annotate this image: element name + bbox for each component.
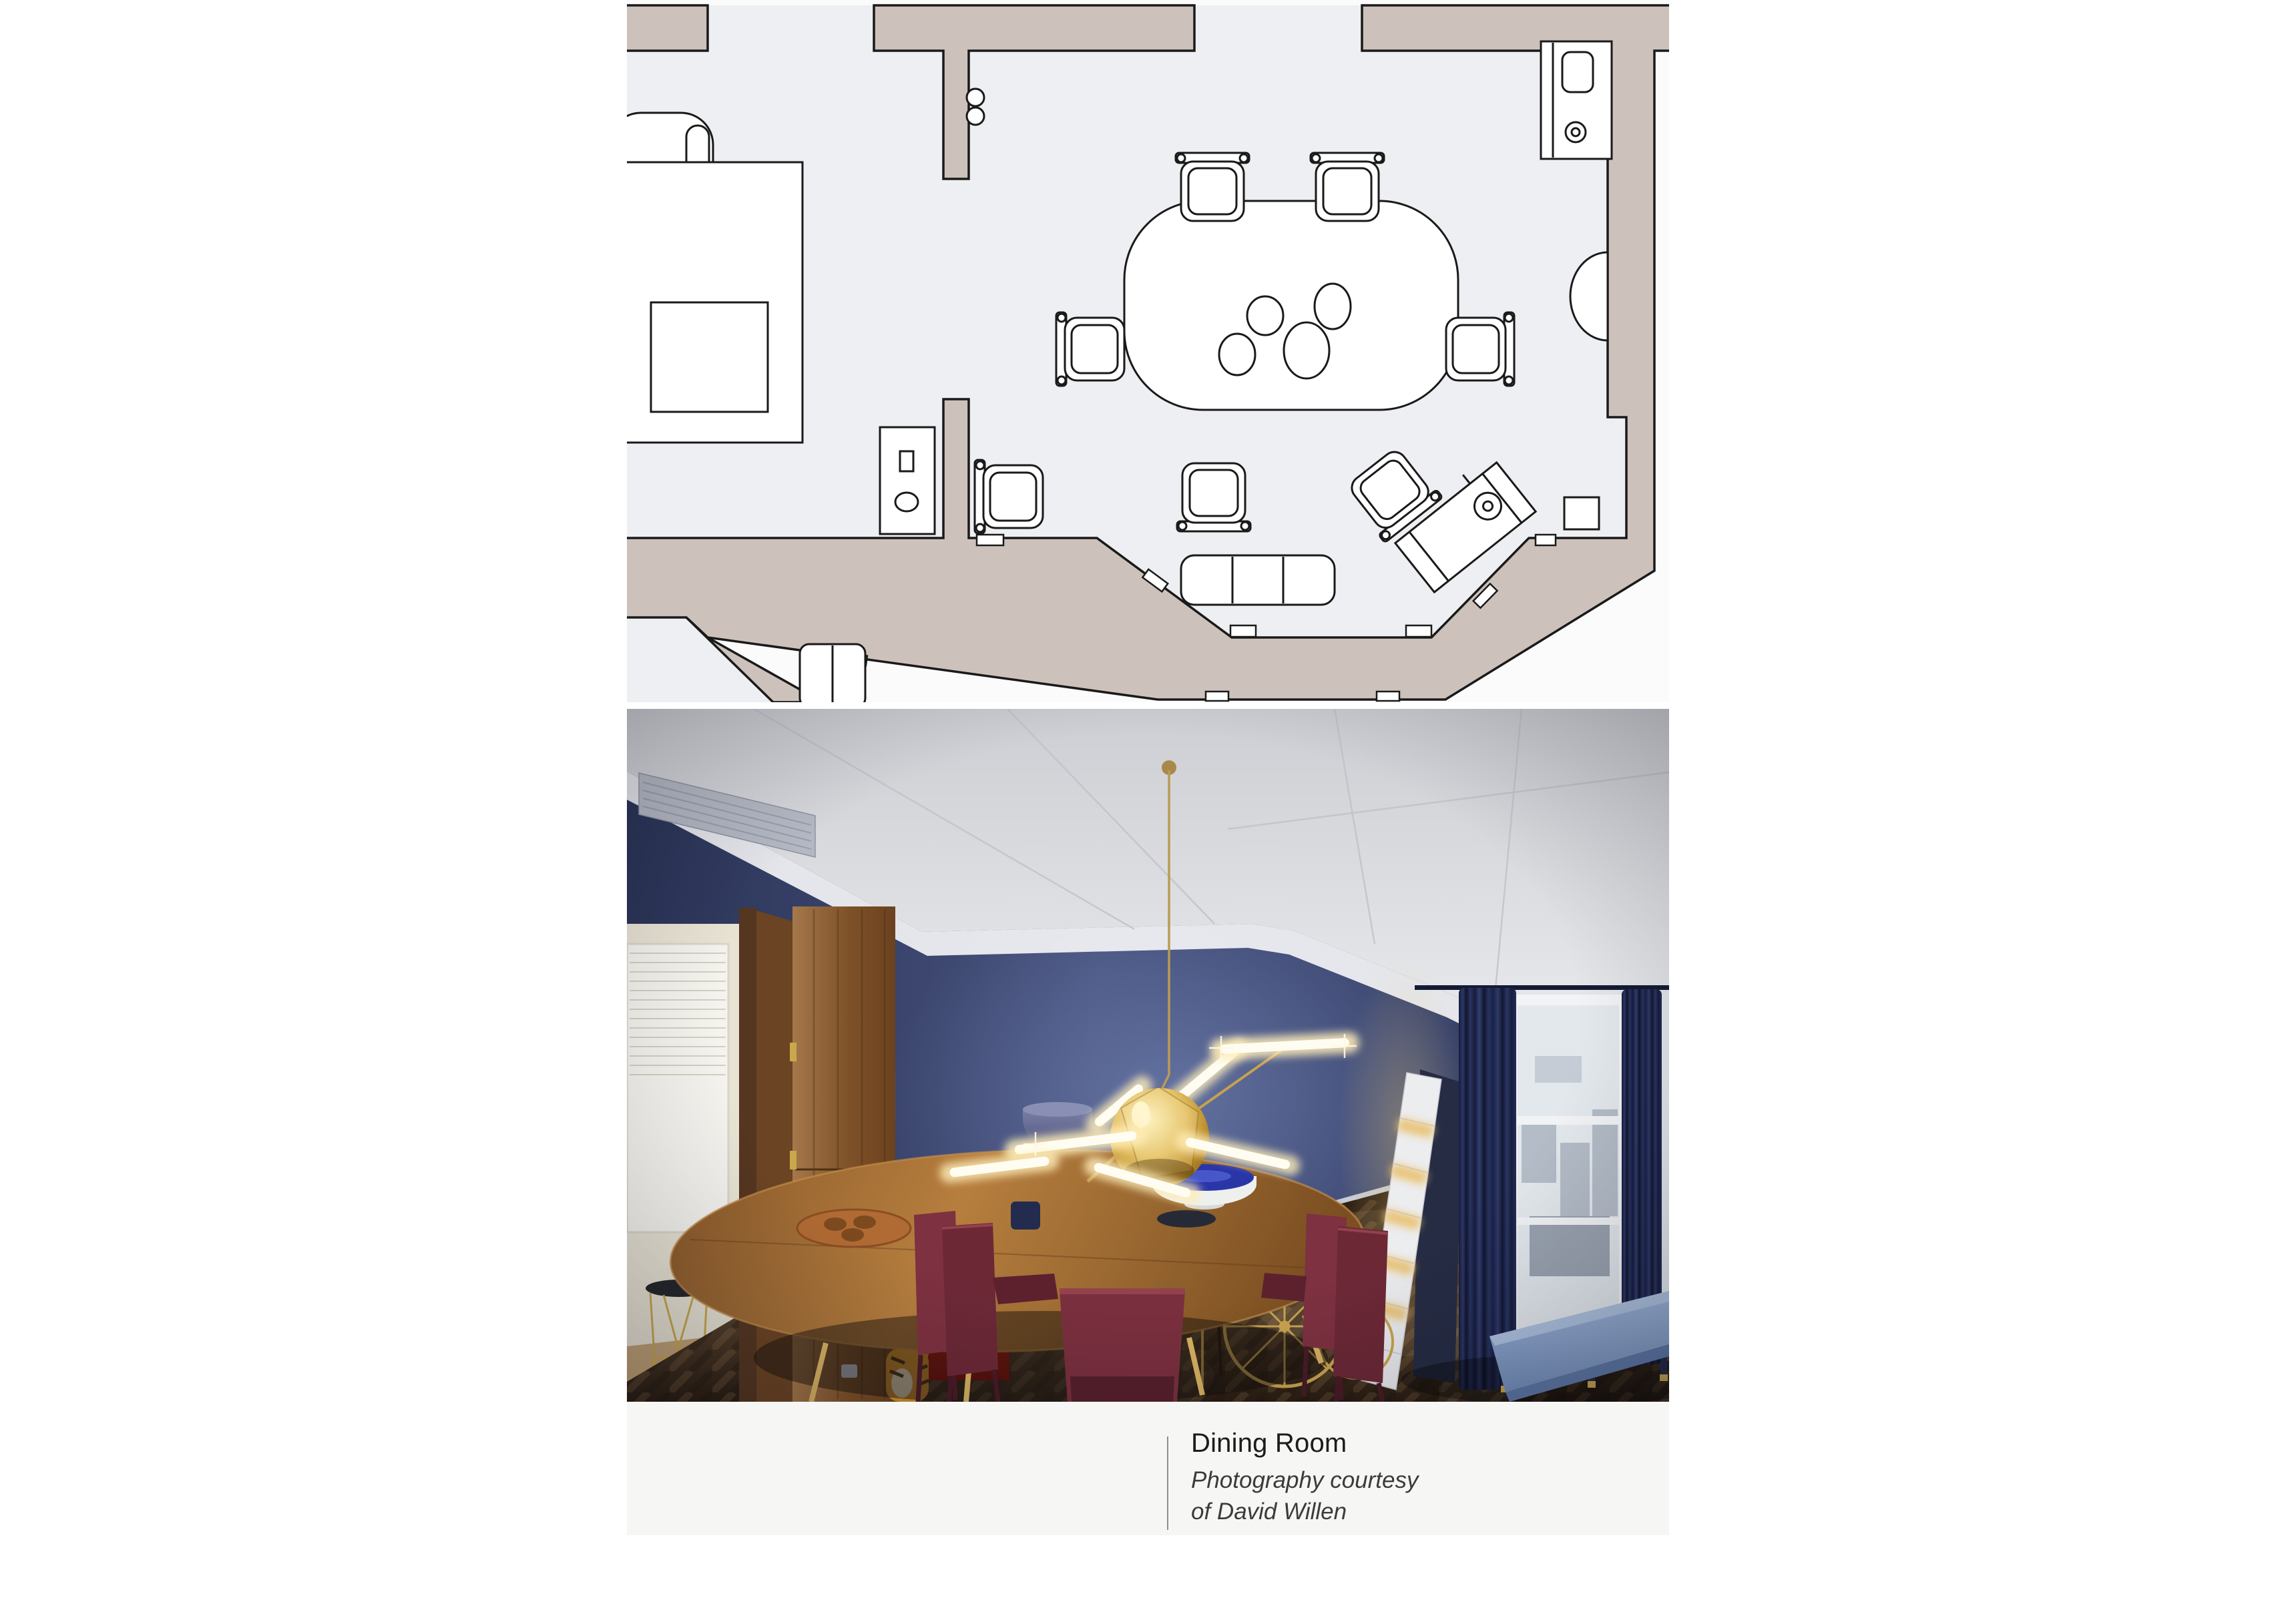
photo-caption-credit-line1: Photography courtesy (1191, 1465, 1418, 1497)
caption-text: Dining Room Photography courtesy of Davi… (1191, 1428, 1418, 1528)
photo-vignette (627, 709, 1669, 1402)
plan-wall-cabinet (880, 427, 935, 534)
plan-wall-top-left (627, 5, 708, 51)
content-column: Dining Room Photography courtesy of Davi… (627, 0, 1669, 1602)
caption: Dining Room Photography courtesy of Davi… (627, 1402, 1669, 1535)
page: Dining Room Photography courtesy of Davi… (0, 0, 2296, 1602)
plan-dining-table (1124, 201, 1458, 410)
plan-window-seat-bench (1181, 555, 1335, 605)
caption-rule (1167, 1436, 1168, 1530)
plan-side-table (651, 302, 768, 412)
plan-drinks-cabinet (1541, 41, 1612, 159)
plan-chair (1056, 312, 1124, 386)
plan-chair (1177, 463, 1250, 531)
plan-chair (1311, 153, 1384, 221)
plan-adjacent-room-bench (800, 644, 865, 702)
dining-room-photo (627, 709, 1669, 1402)
dining-room-photo-figure (627, 709, 1669, 1402)
plan-occasional-table (1564, 497, 1599, 529)
plan-chair (1176, 153, 1249, 221)
plan-chair (1446, 312, 1514, 386)
plan-chair (975, 460, 1043, 533)
floor-plan-figure (627, 0, 1669, 702)
photo-caption-title: Dining Room (1191, 1428, 1418, 1458)
photo-caption-credit-line2: of David Willen (1191, 1497, 1418, 1528)
floor-plan (627, 0, 1669, 702)
